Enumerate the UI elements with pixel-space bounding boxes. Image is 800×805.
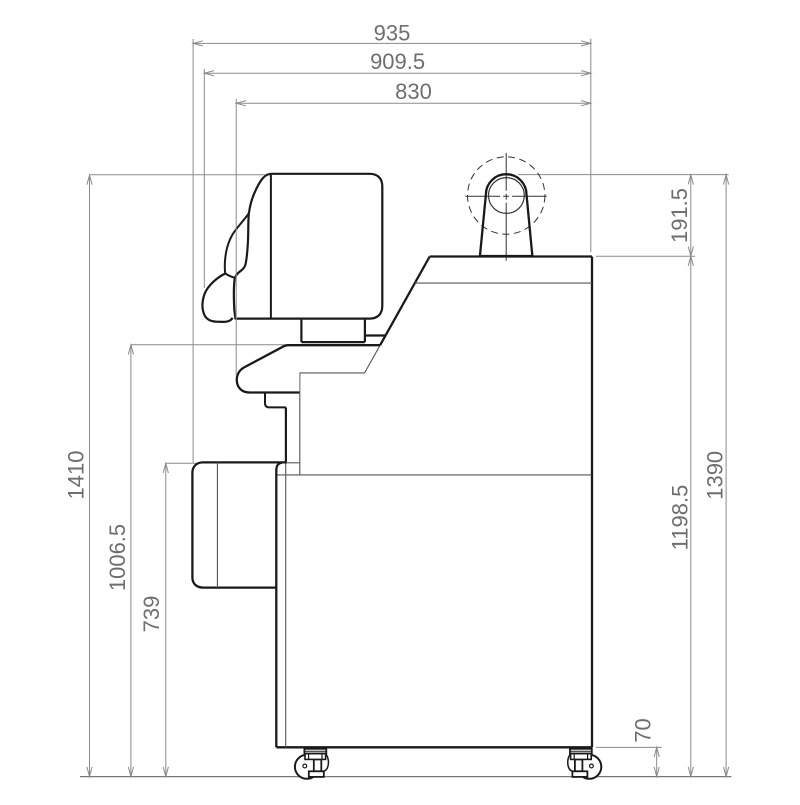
svg-text:1390: 1390: [703, 451, 728, 500]
svg-text:1410: 1410: [64, 451, 89, 500]
svg-text:935: 935: [374, 20, 411, 45]
svg-text:1198.5: 1198.5: [667, 485, 692, 551]
svg-text:830: 830: [395, 79, 432, 104]
svg-text:909.5: 909.5: [370, 49, 425, 74]
svg-text:739: 739: [139, 596, 164, 633]
svg-text:1006.5: 1006.5: [105, 524, 130, 591]
svg-text:70: 70: [631, 718, 656, 742]
svg-text:191.5: 191.5: [667, 188, 692, 243]
